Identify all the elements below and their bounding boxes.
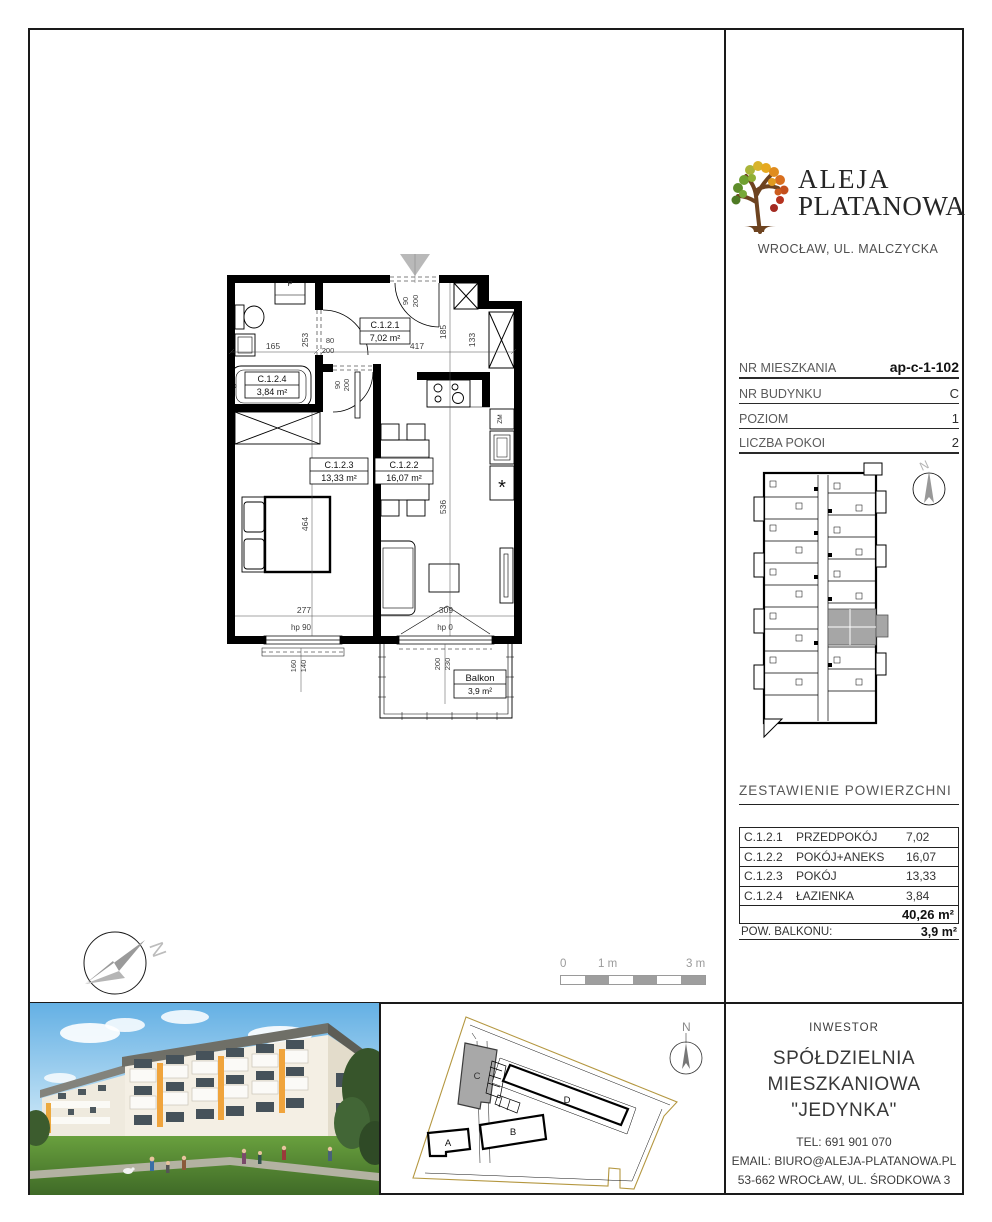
svg-text:C.1.2.2: C.1.2.2 [389, 460, 418, 470]
siteplan-compass-icon: N [670, 1020, 702, 1074]
svg-text:165: 165 [266, 341, 280, 351]
washer-label: P [287, 279, 292, 288]
svg-text:C.1.2.4: C.1.2.4 [257, 374, 286, 384]
investor-name: SPÓŁDZIELNIA MIESZKANIOWA "JEDYNKA" [724, 1046, 964, 1124]
svg-text:Balkon: Balkon [465, 673, 494, 684]
dishwasher-label: ZM [497, 414, 504, 423]
unit-number: ap-c-1-102 [890, 359, 959, 375]
floor-level: 1 [952, 411, 959, 426]
investor-phone: TEL: 691 901 070 [724, 1133, 964, 1152]
svg-text:464: 464 [300, 517, 310, 531]
entrance-arrow-icon [400, 254, 430, 283]
svg-text:90: 90 [333, 381, 342, 389]
project-location: WROCŁAW, UL. MALCZYCKA [730, 242, 966, 256]
scale-one: 1 m [598, 958, 617, 970]
fridge-mark: * [498, 477, 506, 499]
investor-address: 53-662 WROCŁAW, UL. ŚRODKOWA 3 [724, 1171, 964, 1190]
svg-text:417: 417 [410, 341, 424, 351]
unit-info-table: NR MIESZKANIA ap-c-1-102 NR BUDYNKU C PO… [739, 354, 959, 454]
svg-text:80: 80 [326, 336, 334, 345]
unit-info-row: POZIOM 1 [739, 404, 959, 429]
logo-line2: PLATANOWA [798, 193, 968, 220]
svg-text:3,9 m²: 3,9 m² [468, 686, 492, 696]
keyplan-compass-icon: N [913, 457, 945, 505]
unit-info-row: NR BUDYNKU C [739, 379, 959, 404]
total-area: 40,26 m² [740, 906, 958, 923]
svg-text:16,07 m²: 16,07 m² [386, 473, 422, 483]
svg-text:160: 160 [289, 660, 298, 673]
room-label-balcony: Balkon 3,9 m² [454, 670, 506, 698]
room-count: 2 [952, 435, 959, 450]
svg-text:277: 277 [297, 605, 311, 615]
north-compass: N [57, 923, 167, 1008]
svg-text:133: 133 [467, 333, 477, 347]
svg-text:200: 200 [322, 346, 335, 355]
svg-text:A: A [445, 1138, 452, 1149]
svg-text:C.1.2.3: C.1.2.3 [324, 460, 353, 470]
investor-section: INWESTOR SPÓŁDZIELNIA MIESZKANIOWA "JEDY… [724, 1002, 964, 1195]
svg-text:200: 200 [433, 658, 442, 671]
svg-text:B: B [510, 1127, 516, 1138]
svg-text:230: 230 [443, 658, 452, 671]
balcony-area-value: 3,9 m² [921, 925, 959, 939]
unit-info-row: NR MIESZKANIA ap-c-1-102 [739, 354, 959, 379]
area-row: C.1.2.2POKÓJ+ANEKS16,07 [740, 848, 958, 868]
svg-text:C.1.2.1: C.1.2.1 [370, 320, 399, 330]
area-row: C.1.2.1PRZEDPOKÓJ7,02 [740, 828, 958, 848]
building-number: C [950, 386, 959, 401]
apartment-card-page: { "logo": { "line1": "ALEJA", "line2": "… [0, 0, 992, 1222]
room-label-bedroom: C.1.2.3 13,33 m² [310, 458, 368, 484]
svg-text:253: 253 [300, 333, 310, 347]
svg-text:7,02 m²: 7,02 m² [370, 333, 401, 343]
svg-text:140: 140 [299, 660, 308, 673]
north-label: N [144, 939, 167, 960]
logo-line1: ALEJA [798, 166, 968, 193]
svg-text:90: 90 [401, 297, 410, 305]
svg-text:N: N [917, 457, 931, 473]
areas-section-title: ZESTAWIENIE POWIERZCHNI [739, 783, 959, 805]
svg-text:536: 536 [438, 500, 448, 514]
logo-tree-icon [730, 158, 792, 238]
svg-text:hp 0: hp 0 [437, 623, 453, 632]
room-label-bath: C.1.2.4 3,84 m² [245, 372, 299, 398]
areas-table: C.1.2.1PRZEDPOKÓJ7,02 C.1.2.2POKÓJ+ANEKS… [739, 827, 959, 924]
scale-bar: 0 1 m 3 m [560, 958, 706, 988]
scale-three: 3 m [686, 958, 705, 970]
svg-text:200: 200 [342, 379, 351, 392]
highlighted-unit [828, 609, 888, 645]
room-label-hall: C.1.2.1 7,02 m² [360, 318, 410, 344]
investor-email: EMAIL: BIURO@ALEJA-PLATANOWA.PL [724, 1152, 964, 1171]
dimension-labels: 165 417 253 80 200 90 200 185 133 90 200… [266, 295, 477, 673]
svg-text:309: 309 [439, 605, 453, 615]
site-plan: C D B A N [380, 1003, 724, 1195]
site-building-b: B [480, 1115, 546, 1149]
svg-text:3,84 m²: 3,84 m² [257, 387, 288, 397]
unit-info-row: LICZBA POKOI 2 [739, 429, 959, 454]
investor-title: INWESTOR [724, 1022, 964, 1034]
wardrobe [235, 412, 320, 444]
area-row: C.1.2.3POKÓJ13,33 [740, 867, 958, 887]
room-label-living: C.1.2.2 16,07 m² [375, 458, 433, 484]
svg-text:hp 90: hp 90 [291, 623, 312, 632]
svg-text:D: D [564, 1095, 571, 1106]
svg-text:185: 185 [438, 325, 448, 339]
svg-text:13,33 m²: 13,33 m² [321, 473, 357, 483]
document-sheet: ZM P * [28, 28, 964, 1195]
svg-text:N: N [682, 1020, 691, 1034]
scale-bar-segments [560, 975, 706, 985]
logo-wordmark: ALEJA PLATANOWA [798, 166, 968, 220]
floorplan-drawing: ZM P * [217, 252, 547, 748]
balcony-area-row: POW. BALKONU: 3,9 m² [739, 923, 959, 940]
area-row: C.1.2.4ŁAZIENKA3,84 [740, 887, 958, 907]
site-building-a: A [428, 1129, 470, 1156]
building-floor-keyplan: N [724, 457, 966, 747]
building-render-photo [30, 1003, 379, 1195]
svg-text:200: 200 [411, 295, 420, 308]
investor-contact: TEL: 691 901 070 EMAIL: BIURO@ALEJA-PLAT… [724, 1133, 964, 1190]
svg-text:C: C [474, 1071, 481, 1082]
scale-zero: 0 [560, 958, 566, 970]
